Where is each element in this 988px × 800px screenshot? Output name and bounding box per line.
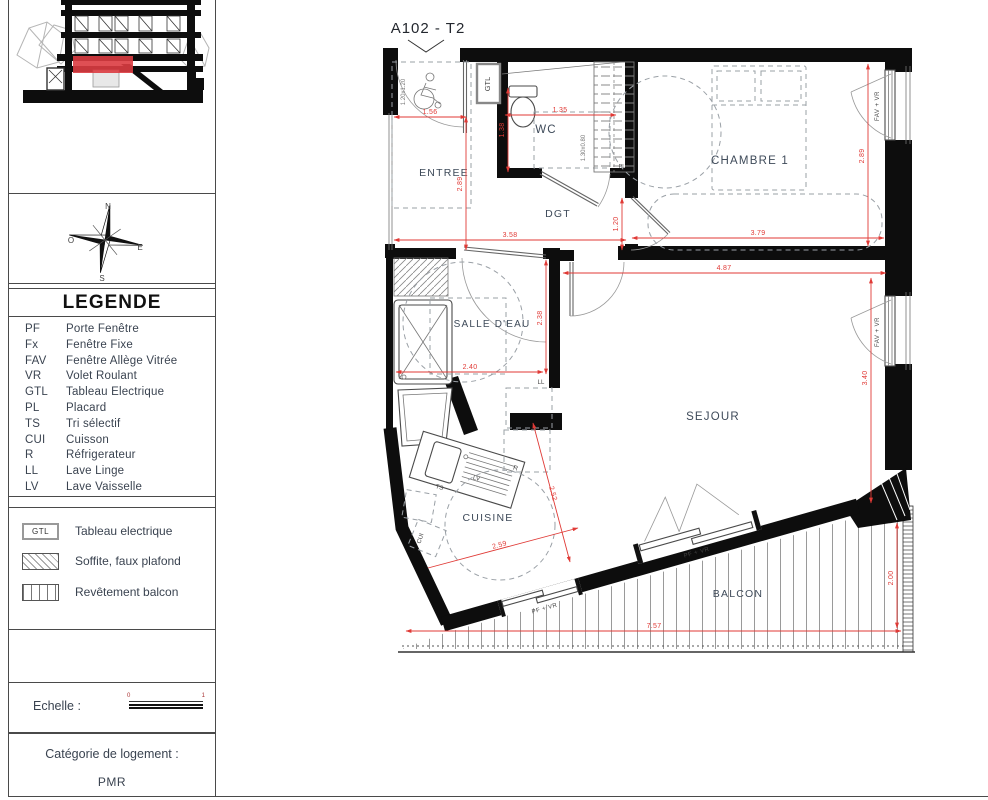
- placard-label: PL: [619, 164, 626, 170]
- dimension-label: 3.40: [862, 371, 869, 386]
- legend-item: PLPlacard: [9, 402, 215, 418]
- dimension-label: 1.56: [423, 109, 438, 116]
- legend-item: LLLave Linge: [9, 465, 215, 481]
- cui-label: CUI: [417, 533, 426, 545]
- dimension-label: 2.00: [888, 571, 895, 586]
- turn-size-label: 1.20x1.20: [401, 78, 407, 105]
- scale-label: Echelle :: [33, 699, 81, 713]
- dimension-label: 1.38: [499, 123, 506, 138]
- washer-label: LL: [538, 380, 545, 386]
- floor-plan: A102 - T2: [215, 0, 988, 800]
- hatch-symbol-icon: [22, 553, 59, 570]
- category-panel: Catégorie de logement : PMR: [8, 732, 216, 797]
- legend-symbols: GTL Tableau electrique Soffite, faux pla…: [8, 507, 216, 630]
- kitchen-counter-icon: [409, 431, 524, 508]
- dimension-label: 7.57: [647, 623, 662, 630]
- wheelchair-icon: [414, 73, 441, 109]
- dimension-label: 3.58: [503, 232, 518, 239]
- gtl-label: GTL: [483, 77, 492, 92]
- title-pointer-icon: [408, 40, 444, 52]
- shower-icon: [394, 300, 452, 384]
- elevation-drawing: [9, 0, 214, 193]
- room-label-dgt: DGT: [545, 208, 571, 220]
- compass-panel: N O E S: [9, 193, 215, 284]
- legend-list: PFPorte Fenêtre FxFenêtre Fixe FAVFenêtr…: [8, 316, 216, 497]
- compass-rose-icon: N O E S: [9, 193, 214, 283]
- room-label-sejour: SEJOUR: [686, 411, 740, 423]
- category-label: Catégorie de logement :: [9, 747, 215, 761]
- symbol-soffite: Soffite, faux plafond: [22, 550, 181, 572]
- compass-s-label: S: [99, 274, 104, 283]
- room-label-wc: WC: [535, 124, 557, 136]
- dimension-label: 3.79: [751, 230, 766, 237]
- toilet-icon: [509, 86, 537, 127]
- compass-e-label: E: [137, 243, 142, 252]
- compass-n-label: N: [105, 202, 111, 211]
- room-label-salle-deau: SALLE D'EAU: [454, 319, 531, 330]
- symbol-balcon: Revêtement balcon: [22, 581, 178, 603]
- stripes-symbol-icon: [22, 584, 59, 601]
- legend-item: RRéfrigerateur: [9, 449, 215, 465]
- chambre-clearance: [648, 194, 882, 250]
- legend-title-text: LEGENDE: [63, 292, 162, 314]
- legend-item: FAVFenêtre Allège Vitrée: [9, 355, 215, 371]
- room-label-balcon: BALCON: [713, 588, 763, 600]
- sejour-door: [570, 262, 624, 316]
- apartment-highlight: [73, 56, 133, 73]
- dimension-label: 1.20: [613, 217, 620, 232]
- dimension-label: 1.35: [553, 107, 568, 114]
- legend-item: VRVolet Roulant: [9, 370, 215, 386]
- scale-panel: Echelle : 0 1: [8, 682, 216, 734]
- dimension-label: 2.40: [463, 364, 478, 371]
- legend-title: LEGENDE: [8, 288, 216, 317]
- legend-item: LVLave Vaisselle: [9, 481, 215, 497]
- wc-door: [540, 172, 610, 208]
- legend-item: FxFenêtre Fixe: [9, 339, 215, 355]
- room-label-cuisine: CUISINE: [463, 512, 514, 524]
- category-value: PMR: [9, 775, 215, 789]
- chambre-door: [631, 197, 670, 251]
- dimension-label: 2.38: [537, 311, 544, 326]
- room-label-chambre1: CHAMBRE 1: [711, 155, 789, 167]
- plan-title: A102 - T2: [391, 20, 466, 37]
- sidebar: N O E S LEGENDE PFPorte Fenêtre FxFenêtr…: [8, 0, 216, 796]
- balcony-floor: [398, 506, 915, 652]
- legend-item: CUICuisson: [9, 434, 215, 450]
- legend-item: GTLTableau Electrique: [9, 386, 215, 402]
- wc-size-label: 1.30x0.80: [581, 134, 587, 161]
- legend-item: PFPorte Fenêtre: [9, 323, 215, 339]
- symbol-gtl: GTL Tableau electrique: [22, 520, 172, 542]
- scale-bar: 0 1: [129, 693, 203, 709]
- dimension-label: 2.89: [457, 177, 464, 192]
- gtl-symbol-icon: GTL: [22, 523, 59, 540]
- dimension-label: 4.87: [717, 265, 732, 272]
- ts-label: TS: [435, 484, 444, 492]
- dimension-label: 2.89: [859, 149, 866, 164]
- sejour-window-label: FAV + VR: [875, 317, 881, 347]
- chambre-window-label: FAV + VR: [875, 91, 881, 121]
- legend-item: TSTri sélectif: [9, 418, 215, 434]
- building-elevation-locator: [9, 0, 215, 194]
- compass-o-label: O: [68, 236, 74, 245]
- bed-icon: [712, 66, 806, 190]
- soffite-hatch: [394, 258, 448, 296]
